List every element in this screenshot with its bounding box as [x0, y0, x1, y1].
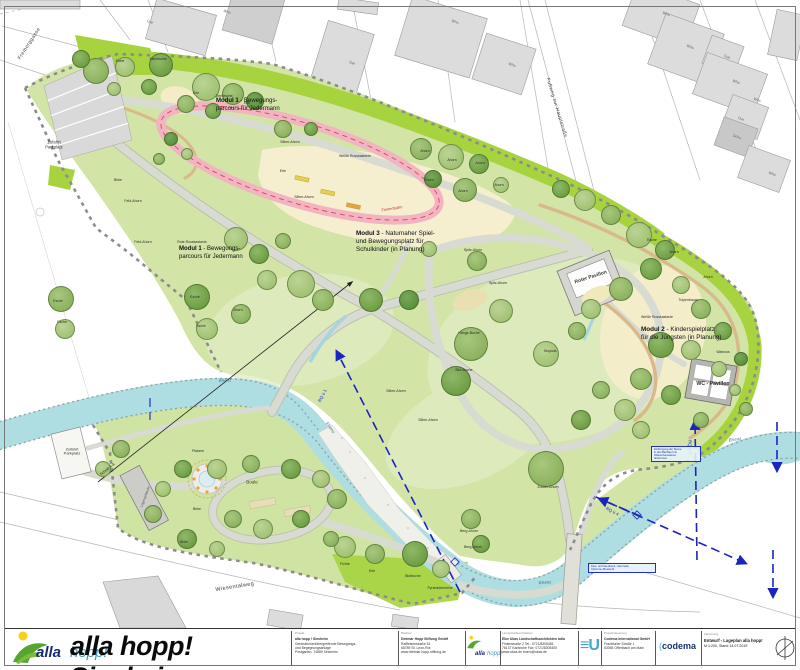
- cell-header: Projektsteuerung: [604, 632, 656, 636]
- cell-header: Landschaftsarchitekten: [502, 632, 577, 636]
- site-plan-sheet: FreiberggasseFußweg zur HauptstraßeWiese…: [0, 0, 800, 670]
- elke-ukas-logo: ≡U: [580, 637, 599, 655]
- plan-title: alla hopp! Sinsheim: [70, 631, 295, 670]
- cell-divider: [601, 631, 602, 665]
- cell-header: Zeichnung: [704, 632, 774, 637]
- cell-divider: [578, 631, 579, 665]
- cell-line: www.dietmar-hopp-stiftung.de: [401, 650, 463, 654]
- cell-header: Projekt: [295, 632, 395, 636]
- title-block-cell: ProjektsteuerungCodema International Gmb…: [604, 632, 656, 650]
- logo-text-alla: alla: [475, 651, 485, 657]
- cell-header: Bauherr: [401, 632, 463, 636]
- cell-divider: [500, 631, 501, 665]
- title-block-cell: BauherrDietmar Hopp Stiftung GmbHRaiffei…: [401, 632, 463, 655]
- cell-divider: [398, 631, 399, 665]
- logo-text-alla: alla: [36, 644, 61, 661]
- alla-hopp-logo-small: alla hopp!: [466, 635, 500, 665]
- wc-pavilion: [685, 358, 737, 405]
- title-block-cell: LandschaftsarchitektenElke Ukas Landscha…: [502, 632, 577, 655]
- drawing-scale-date: M 1:200, Stand 14.07.2015: [704, 644, 774, 649]
- cell-line: 63065 Offenbach am Main: [604, 646, 656, 650]
- title-block: alla hopp! alla hopp! Sinsheim alla hopp…: [4, 628, 796, 667]
- cell-divider: [465, 631, 466, 665]
- cell-divider: [655, 631, 656, 665]
- codema-logo: (codema: [659, 641, 696, 651]
- cell-line: Postgarten, 74889 Sinsheim: [295, 650, 395, 654]
- access-bridge: [51, 427, 91, 479]
- cell-line: www.ukas.de buero@ukas.de: [502, 650, 577, 654]
- alla-hopp-figure-icon: [466, 635, 482, 650]
- cell-divider: [701, 631, 702, 665]
- drawing-info-cell: Zeichnung Entwurf - Lageplan alla hopp! …: [704, 632, 774, 650]
- title-block-cell: Projektalla hopp ! SinsheimGenerationenü…: [295, 632, 395, 655]
- site-plan-map: [0, 0, 800, 628]
- cell-divider: [291, 631, 292, 665]
- north-arrow-icon: [774, 636, 796, 660]
